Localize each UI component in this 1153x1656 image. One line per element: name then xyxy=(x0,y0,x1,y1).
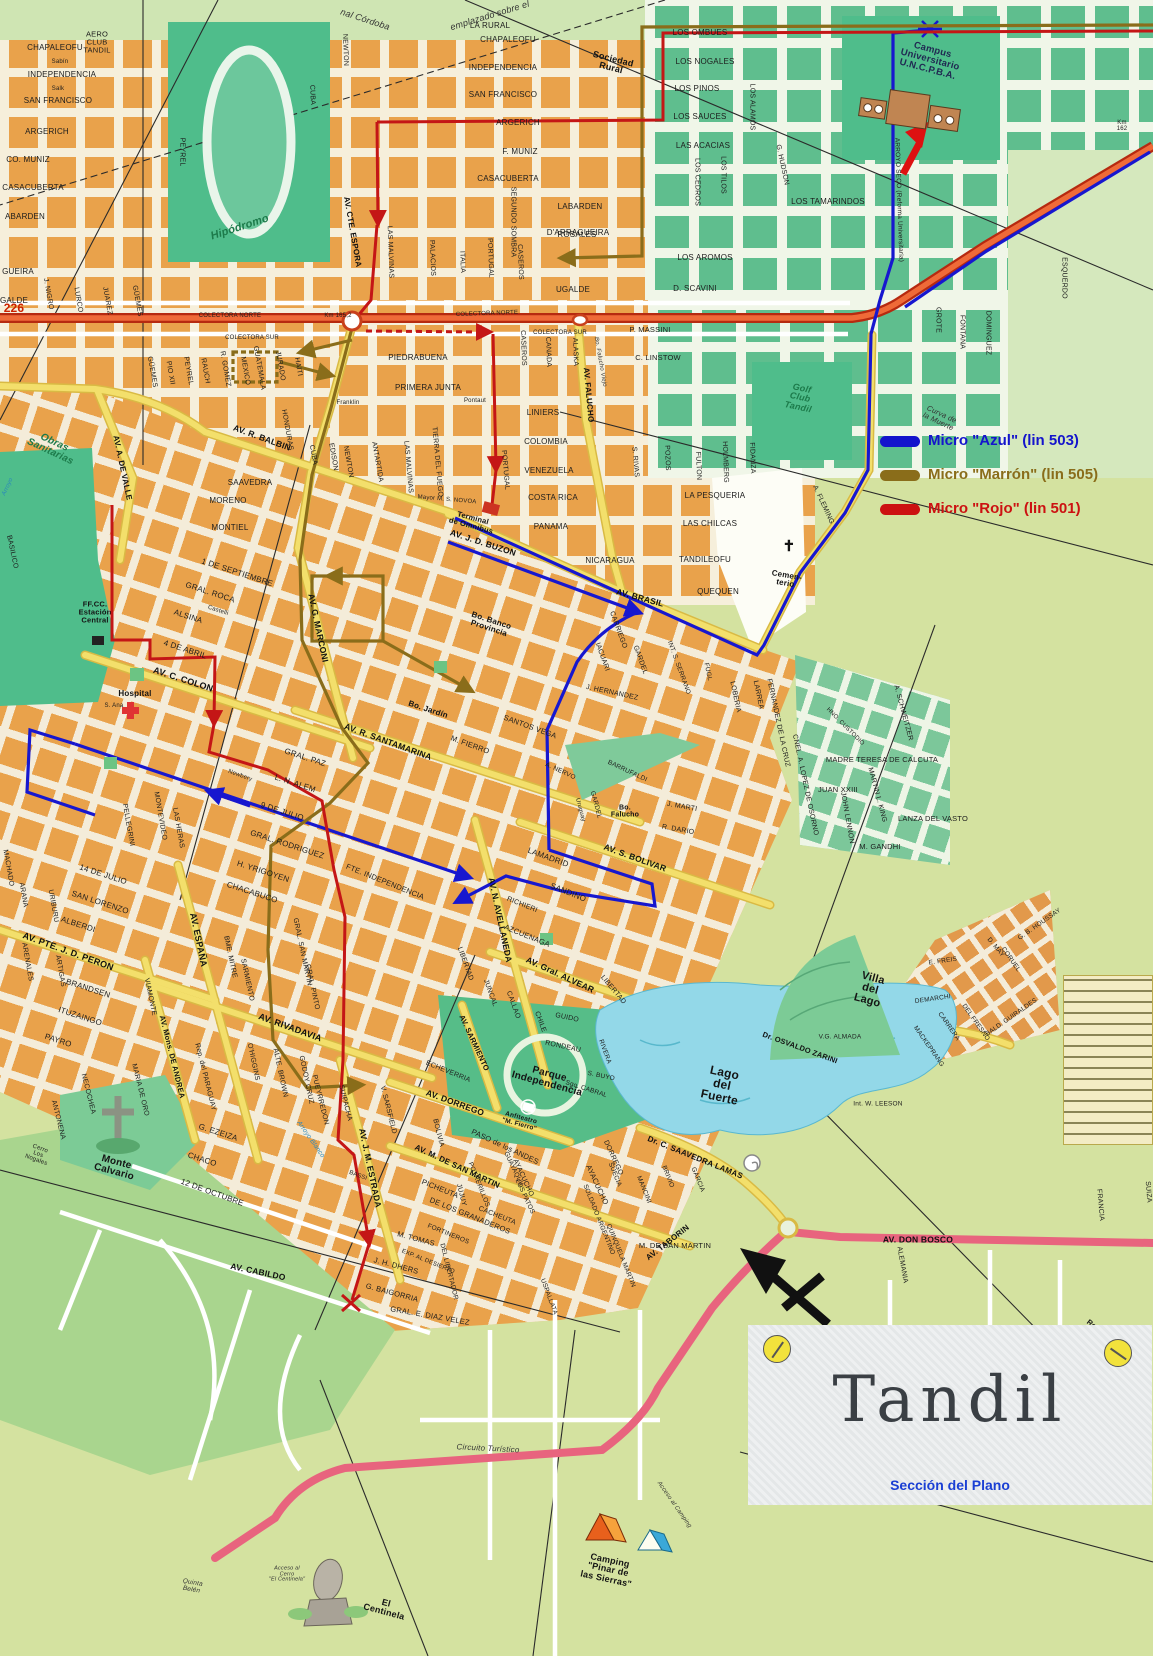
hipodromo-track xyxy=(207,50,291,234)
map-label: UGALDE xyxy=(556,286,590,294)
map-label: CHAPALEOFU xyxy=(27,44,83,52)
map-label: ALASKA xyxy=(571,338,579,367)
map-label: ARGERICH xyxy=(496,119,540,127)
plaza-squares xyxy=(104,661,700,945)
map-label: TANDILEOFU xyxy=(679,556,731,564)
map-label: PRIMERA JUNTA xyxy=(395,384,461,392)
map-label: Sabín xyxy=(52,59,69,65)
map-label: LANZA DEL VASTO xyxy=(898,815,968,823)
map-label: CUBA xyxy=(308,85,316,105)
map-label: LOS AROMOS xyxy=(677,254,732,262)
map-label: CHAPALEOFU xyxy=(480,36,536,44)
map-label: GALDE xyxy=(0,297,28,305)
campus-building-icon xyxy=(858,86,962,134)
map-label: D. SCAVINI xyxy=(673,285,717,293)
map-label: Bo. Falucho xyxy=(611,805,639,820)
map-label: S. Ana xyxy=(105,703,124,709)
map-label: ✝ xyxy=(783,539,796,555)
map-label: DOMINGUEZ xyxy=(984,311,991,356)
map-label: LA RURAL xyxy=(470,22,510,30)
legend-label-azul: Micro "Azul" (lin 503) xyxy=(928,432,1079,449)
map-label: C. LINSTOW xyxy=(635,354,681,362)
map-label: COLECTORA SUR xyxy=(225,335,279,341)
map-label: CASEROS xyxy=(516,244,525,280)
map-label: CANADA xyxy=(544,337,552,368)
legend-row-rojo: Micro "Rojo" (lin 501) xyxy=(880,500,1153,534)
map-label: PANAMA xyxy=(534,523,568,531)
map-label: LOS CEDROS xyxy=(693,158,700,206)
map-label: POZOS xyxy=(663,445,671,471)
map-label: F. MUNIZ xyxy=(502,148,537,156)
map-label: LAS CHILCAS xyxy=(683,520,737,528)
map-label: GUEIRA xyxy=(2,268,34,276)
map-label: Franklin xyxy=(337,400,360,406)
tandil-city-map: AERO CLUB TANDILCHAPALEOFUSabínINDEPENDE… xyxy=(0,0,1153,1656)
map-label: MORENO xyxy=(209,497,246,505)
map-label: LOS ALAMOS xyxy=(748,84,755,131)
map-label: Golf Club Tandil xyxy=(784,381,817,414)
map-label: Hospital xyxy=(118,690,151,698)
map-subtitle: Sección del Plano xyxy=(748,1477,1152,1493)
map-label: LOS TILOS xyxy=(719,156,726,194)
map-label: AERO CLUB TANDIL xyxy=(83,30,110,53)
map-label: LA PESQUERIA xyxy=(685,492,746,500)
monte-calvario-cross-icon xyxy=(96,1096,140,1154)
legend-pill-marron xyxy=(880,470,920,481)
map-label: SAN FRANCISCO xyxy=(24,97,92,105)
map-label: Pontaut xyxy=(464,398,486,404)
map-label: SAN FRANCISCO xyxy=(469,91,537,99)
map-label: PORTUGAL xyxy=(486,238,495,278)
map-label: FF.CC. Estación Central xyxy=(79,600,112,623)
map-label: PALACIOS xyxy=(428,240,437,276)
map-label: Int. W. LEESON xyxy=(853,1102,902,1109)
map-label: AV. DON BOSCO xyxy=(883,1236,953,1245)
map-label: NEWTON xyxy=(341,34,349,66)
map-label: HOLMBERG xyxy=(721,441,730,483)
map-label: COSTA RICA xyxy=(528,494,578,502)
legend-pill-azul xyxy=(880,436,920,447)
map-label: ITALIA xyxy=(458,251,466,273)
map-label: ABARDEN xyxy=(5,213,45,221)
map-label: MADRE TERESA DE CALCUTA xyxy=(826,756,938,764)
map-label: MONTIEL xyxy=(212,524,249,532)
map-label: GROTE xyxy=(934,307,941,333)
map-label: Km 165,2 xyxy=(324,313,351,319)
legend-pill-rojo xyxy=(880,504,920,515)
campus-arrow-icon xyxy=(903,122,928,174)
map-label: CASACUBERTA xyxy=(2,184,63,192)
map-label: COLECTORA SUR xyxy=(533,330,587,336)
hospital-cross-icon xyxy=(122,702,139,719)
map-label: INDEPENDENCIA xyxy=(469,64,537,72)
terminal-omnibus-icon xyxy=(482,501,500,516)
map-label: COLOMBIA xyxy=(524,438,568,446)
map-label: Salk xyxy=(52,86,64,92)
map-label: CASACUBERTA xyxy=(477,175,538,183)
map-label: ESQUERDO xyxy=(1060,257,1067,299)
map-label: LOS NOGALES xyxy=(675,58,734,66)
map-label: LOS SAUCES xyxy=(673,113,726,121)
legend-label-rojo: Micro "Rojo" (lin 501) xyxy=(928,500,1081,517)
map-label: P. MASSINI xyxy=(629,326,670,334)
legend-row-azul: Micro "Azul" (lin 503) xyxy=(880,432,1153,466)
map-label: FULTON xyxy=(694,452,702,481)
map-label: Lago del Fuerte xyxy=(700,1063,745,1107)
map-label: M. DE SAN MARTIN xyxy=(639,1242,711,1250)
map-label: VENEZUELA xyxy=(524,467,573,475)
map-label: FONTANA xyxy=(958,315,965,349)
map-label: SAAVEDRA xyxy=(228,479,273,487)
map-label: CASEROS xyxy=(519,330,528,366)
estacion-central-icon xyxy=(92,636,104,645)
map-label: ARGERICH xyxy=(25,128,69,136)
map-label: LAS ACACIAS xyxy=(676,142,730,150)
map-label: LABARDEN xyxy=(558,203,603,211)
map-label: QUEQUEN xyxy=(697,588,739,596)
map-label: V.G. ALMADA xyxy=(819,1035,862,1042)
map-label: Acceso al Cerro "El Centinela" xyxy=(269,1566,305,1583)
map-title: Tandil xyxy=(748,1363,1152,1437)
map-label: LINIERS xyxy=(527,409,560,417)
map-label: LOS PINOS xyxy=(675,85,720,93)
bus-legend: Micro "Azul" (lin 503) Micro "Marrón" (l… xyxy=(880,432,1153,534)
map-label: PEYREL xyxy=(178,138,185,167)
map-label: Km 162 xyxy=(1117,120,1128,132)
map-label: PIEDRABUENA xyxy=(388,354,448,362)
map-label: INDEPENDENCIA xyxy=(28,71,96,79)
map-title-box: Tandil Sección del Plano xyxy=(748,1325,1152,1505)
map-label: LOS TAMARINDOS xyxy=(791,198,865,206)
north-arrow-icon xyxy=(740,1248,828,1324)
map-label: FIDANZA xyxy=(748,442,756,474)
map-label: LOS OMBUES xyxy=(673,29,728,37)
map-label: NICARAGUA xyxy=(585,557,634,565)
legend-label-marron: Micro "Marrón" (lin 505) xyxy=(928,466,1098,483)
map-label: M. GANDHI xyxy=(859,843,900,851)
pin-icon xyxy=(763,1335,791,1363)
camping-tents-icon xyxy=(586,1514,672,1552)
map-label: CO. MUNIZ xyxy=(6,156,50,164)
map-label: D'ARRAGUEIRA xyxy=(547,229,610,237)
legend-row-marron: Micro "Marrón" (lin 505) xyxy=(880,466,1153,500)
map-label: COLECTORA NORTE xyxy=(199,313,261,319)
